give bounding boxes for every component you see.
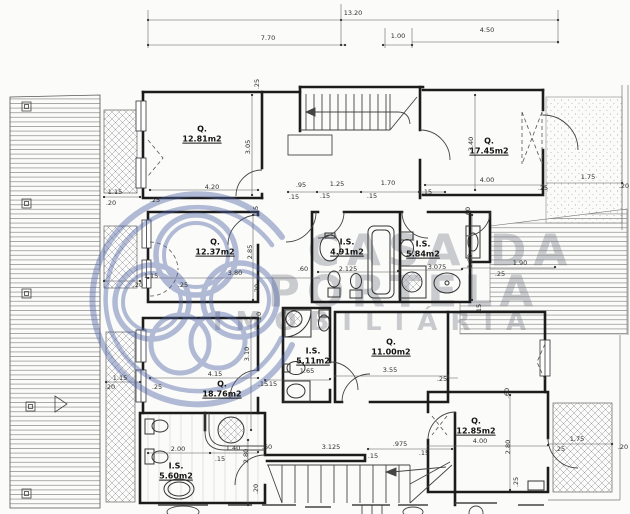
room-area: 12.85m2: [456, 427, 495, 437]
dim-label: .20: [253, 284, 261, 294]
dim-label: 4.15: [208, 370, 222, 378]
dim-label: .20: [105, 383, 115, 391]
dim-label: .975: [393, 440, 407, 448]
room-name: I.S.: [330, 238, 364, 248]
dim-label: .15: [267, 380, 277, 388]
dim-label: .25: [178, 281, 188, 289]
dim-label: 2.00: [171, 445, 185, 453]
dim-label: 1.90: [513, 259, 527, 267]
dim-label: 1.75: [581, 173, 595, 181]
dim-label: .20: [252, 484, 260, 494]
dim-label: .20: [255, 312, 263, 322]
dim-label: 3.075: [428, 263, 447, 271]
room-label: Q.11.00m2: [371, 338, 410, 359]
dim-label: .15: [368, 452, 378, 460]
room-name: Q.: [456, 417, 495, 427]
dim-label: 2.80: [242, 449, 250, 463]
room-label: I.S.4.91m2: [330, 238, 364, 259]
room-name: Q.: [195, 238, 234, 248]
dim-label: .20: [106, 199, 116, 207]
room-name: I.S.: [406, 240, 440, 250]
dim-label: .60: [262, 443, 272, 451]
dim-label: .20: [618, 443, 628, 451]
dim-label: .95: [296, 181, 306, 189]
dim-label: .25: [253, 79, 261, 89]
dim-label: 1.15: [144, 272, 158, 280]
dim-label: 13.20: [344, 9, 363, 17]
room-name: Q.: [469, 137, 508, 147]
room-name: Q.: [182, 125, 221, 135]
room-area: 17.45m2: [469, 147, 508, 157]
dim-label: .25: [152, 383, 162, 391]
dim-label: .25: [512, 477, 520, 487]
dim-label: 1.65: [300, 367, 314, 375]
dim-label: 4.00: [473, 437, 487, 445]
dim-label: 4.00: [480, 176, 494, 184]
room-area: 12.37m2: [195, 248, 234, 258]
dim-label: .15: [320, 192, 330, 200]
dim-label: .15: [419, 449, 429, 457]
dim-label: 1.00: [391, 32, 405, 40]
room-area: 18.76m2: [202, 390, 241, 400]
room-area: 4.91m2: [330, 248, 364, 258]
dim-label: 1.15: [113, 374, 127, 382]
dim-label: .15: [252, 206, 260, 216]
room-label: Q.12.85m2: [456, 417, 495, 438]
dim-label: .60: [503, 388, 511, 398]
dim-label: 2.85: [246, 245, 254, 259]
dim-label: .20: [133, 281, 143, 289]
dim-label: .60: [298, 265, 308, 273]
dim-label: .15: [422, 188, 432, 196]
room-name: Q.: [371, 338, 410, 348]
dim-label: .15: [475, 304, 483, 314]
dim-label: .25: [150, 196, 160, 204]
dim-label: 4.20: [205, 183, 219, 191]
dim-label: 3.10: [243, 347, 251, 361]
dim-label: .60: [464, 207, 472, 217]
room-label: I.S.5.60m2: [159, 462, 193, 483]
dim-label: 1.25: [330, 180, 344, 188]
dim-label: .15: [289, 193, 299, 201]
dim-label: .25: [555, 445, 565, 453]
room-label: Q.12.37m2: [195, 238, 234, 259]
watermark-logo: [0, 0, 630, 514]
room-name: I.S.: [159, 462, 193, 472]
room-label: Q.18.76m2: [202, 380, 241, 401]
dim-label: 1.75: [570, 435, 584, 443]
dim-label: .25: [437, 375, 447, 383]
dim-label: .15: [258, 380, 268, 388]
room-area: 12.81m2: [182, 135, 221, 145]
room-area: 5.84m2: [406, 250, 440, 260]
dim-label: 1.15: [108, 188, 122, 196]
dim-label: 3.40: [467, 137, 475, 151]
dim-label: .25: [538, 184, 548, 192]
room-label: I.S.5.84m2: [406, 240, 440, 261]
room-label: Q.12.81m2: [182, 125, 221, 146]
room-area: 11.00m2: [371, 348, 410, 358]
dim-label: .20: [619, 182, 629, 190]
dim-label: 3.80: [228, 269, 242, 277]
dim-label: 3.05: [244, 140, 252, 154]
room-area: 5.60m2: [159, 472, 193, 482]
room-name: Q.: [202, 380, 241, 390]
room-label: I.S.5.11m2: [296, 347, 330, 368]
room-label: Q.17.45m2: [469, 137, 508, 158]
dim-label: .15: [215, 455, 225, 463]
dim-label: 1.90: [466, 254, 474, 268]
dim-label: .25: [495, 270, 505, 278]
dim-label: 4.50: [480, 26, 494, 34]
dim-label: 3.55: [383, 366, 397, 374]
dim-label: 1.70: [381, 179, 395, 187]
dim-label: 7.70: [261, 34, 275, 42]
floor-plan: CASA DA PORTELA IMOBILIÁRIA: [0, 0, 630, 514]
dim-label: 3.125: [322, 443, 341, 451]
dim-label: .15: [367, 192, 377, 200]
room-area: 5.11m2: [296, 357, 330, 367]
room-name: I.S.: [296, 347, 330, 357]
dim-label: 2.125: [339, 265, 358, 273]
dim-label: 1.40: [226, 444, 240, 452]
dim-label: 2.80: [504, 440, 512, 454]
